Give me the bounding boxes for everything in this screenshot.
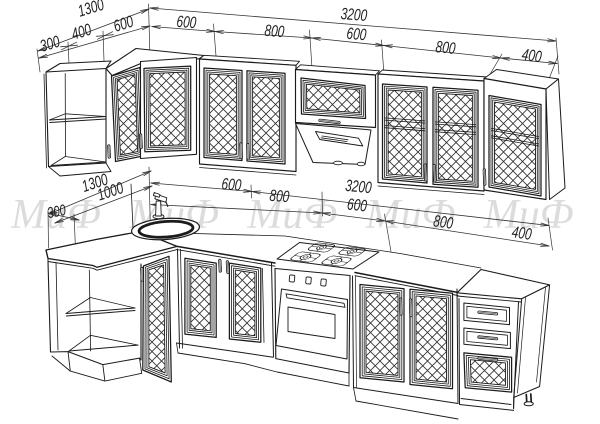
svg-text:МиФ: МиФ	[246, 192, 337, 238]
svg-text:800: 800	[264, 22, 286, 42]
svg-text:300: 300	[46, 202, 68, 222]
svg-text:800: 800	[269, 187, 291, 207]
svg-text:3200: 3200	[344, 177, 373, 198]
svg-text:800: 800	[435, 38, 457, 58]
svg-text:400: 400	[511, 223, 534, 244]
svg-text:600: 600	[176, 13, 198, 33]
svg-text:3200: 3200	[340, 5, 368, 25]
svg-text:400: 400	[521, 46, 544, 67]
svg-text:600: 600	[346, 25, 368, 45]
svg-text:600: 600	[346, 196, 368, 216]
svg-text:600: 600	[221, 175, 243, 195]
svg-text:800: 800	[432, 212, 455, 233]
